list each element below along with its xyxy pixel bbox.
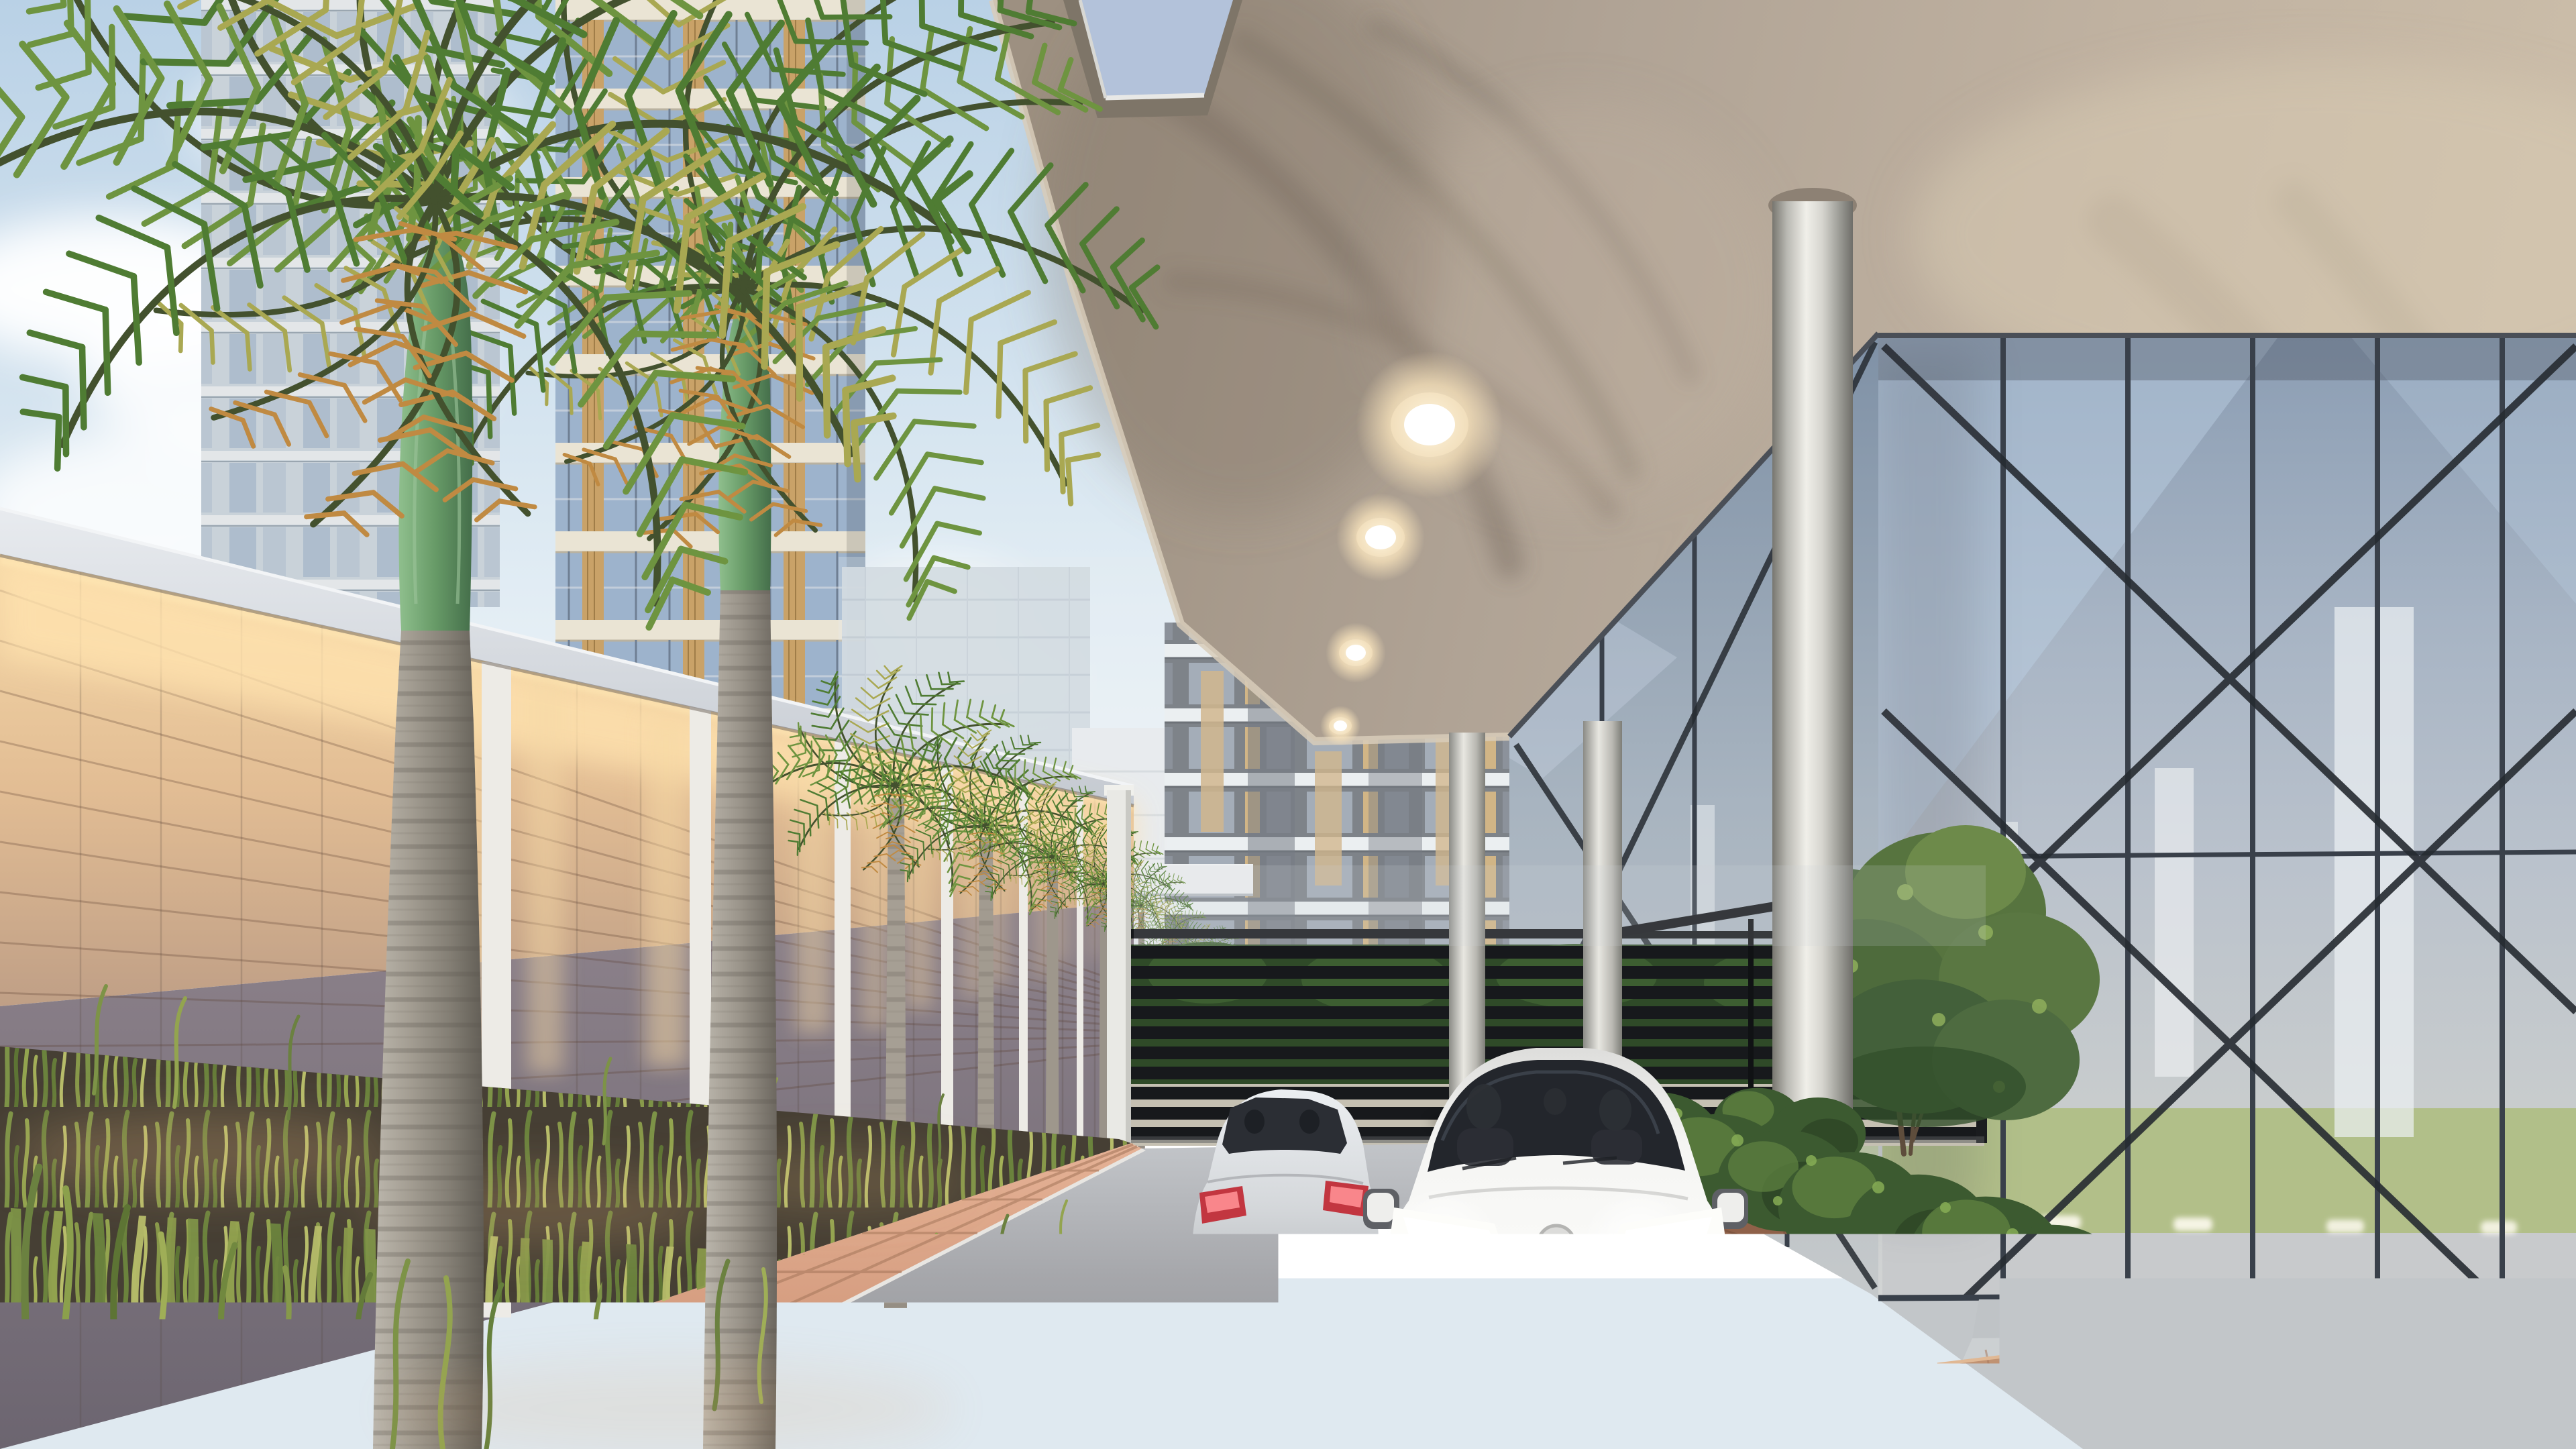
downlight-3 [1326, 623, 1386, 683]
render-canvas [0, 0, 2576, 1449]
downlight-1 [1356, 351, 1503, 498]
downlight-2 [1336, 493, 1425, 582]
gate-pillar [1104, 785, 1134, 1152]
emblem [1538, 1226, 1574, 1262]
downlight-4 [1320, 706, 1360, 746]
